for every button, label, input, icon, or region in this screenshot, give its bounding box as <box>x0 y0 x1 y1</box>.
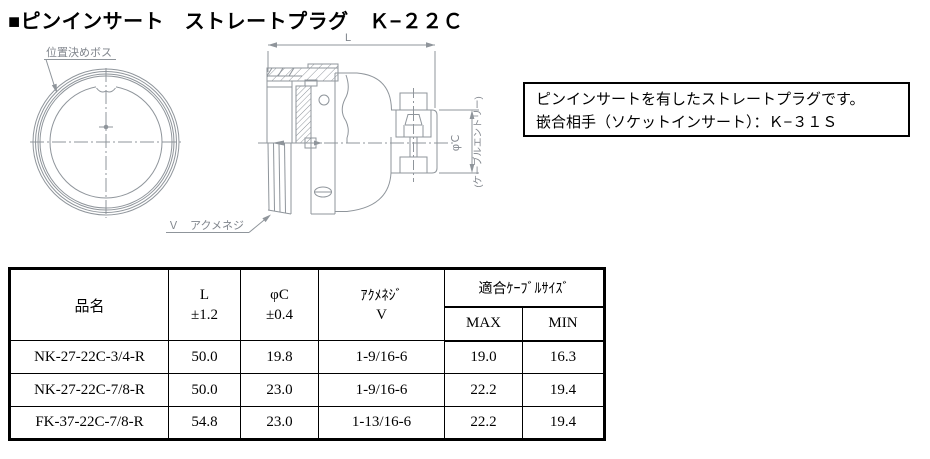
col-header-phiC: φC ±0.4 <box>241 269 319 341</box>
table-row: NK-27-22C-7/8-R 50.0 23.0 1-9/16-6 22.2 … <box>10 374 605 407</box>
cell-min: 16.3 <box>523 341 605 374</box>
col-header-max: MAX <box>445 307 523 341</box>
cell-min: 19.4 <box>523 374 605 407</box>
cell-L: 54.8 <box>169 407 241 440</box>
side-view <box>166 42 479 232</box>
cell-phiC: 23.0 <box>241 407 319 440</box>
positioning-boss-label: 位置決めボス <box>46 45 112 59</box>
col-header-min: MIN <box>523 307 605 341</box>
col-header-name: 品名 <box>10 269 169 341</box>
cell-L: 50.0 <box>169 341 241 374</box>
cell-part-name: FK-37-22C-7/8-R <box>10 407 169 440</box>
technical-drawing: 位置決めボス <box>0 30 520 260</box>
cell-L: 50.0 <box>169 374 241 407</box>
datasheet-page: ■ピンインサート ストレートプラグ Ｋ−２２Ｃ <box>0 0 930 459</box>
front-view <box>30 60 182 219</box>
cell-min: 19.4 <box>523 407 605 440</box>
cell-acme: 1-9/16-6 <box>319 374 445 407</box>
center-mark <box>104 125 108 129</box>
dim-phiC-label: φＣ <box>450 133 462 151</box>
col-header-L: L ±1.2 <box>169 269 241 341</box>
info-line-2: 嵌合相手（ソケットインサート）：Ｋ−３１Ｓ <box>536 111 897 134</box>
col-header-acme: ｱｸﾒﾈｼﾞ V <box>319 269 445 341</box>
acme-thread-label: Ｖ アクメネジ <box>168 219 244 232</box>
col-header-cable-size: 適合ｹｰﾌﾞﾙｻｲｽﾞ <box>445 269 605 307</box>
table-row: NK-27-22C-3/4-R 50.0 19.8 1-9/16-6 19.0 … <box>10 341 605 374</box>
pin-insert-section <box>296 86 311 143</box>
table-row: FK-37-22C-7/8-R 54.8 23.0 1-13/16-6 22.2… <box>10 407 605 440</box>
cell-phiC: 19.8 <box>241 341 319 374</box>
info-box: ピンインサートを有したストレートプラグです。 嵌合相手（ソケットインサート）：Ｋ… <box>523 82 910 137</box>
spec-table: 品名 L ±1.2 φC ±0.4 ｱｸﾒﾈｼﾞ V 適合ｹｰﾌﾞﾙｻｲｽﾞ M… <box>8 267 606 441</box>
cell-part-name: NK-27-22C-7/8-R <box>10 374 169 407</box>
cable-entry-label: (ケーブルエントリー) <box>472 96 484 187</box>
cell-max: 19.0 <box>445 341 523 374</box>
cell-phiC: 23.0 <box>241 374 319 407</box>
break-line <box>342 75 348 143</box>
cell-acme: 1-13/16-6 <box>319 407 445 440</box>
cell-max: 22.2 <box>445 407 523 440</box>
cell-acme: 1-9/16-6 <box>319 341 445 374</box>
info-line-1: ピンインサートを有したストレートプラグです。 <box>536 88 897 111</box>
cell-max: 22.2 <box>445 374 523 407</box>
cell-part-name: NK-27-22C-3/4-R <box>10 341 169 374</box>
dim-L-label: L <box>345 32 351 44</box>
